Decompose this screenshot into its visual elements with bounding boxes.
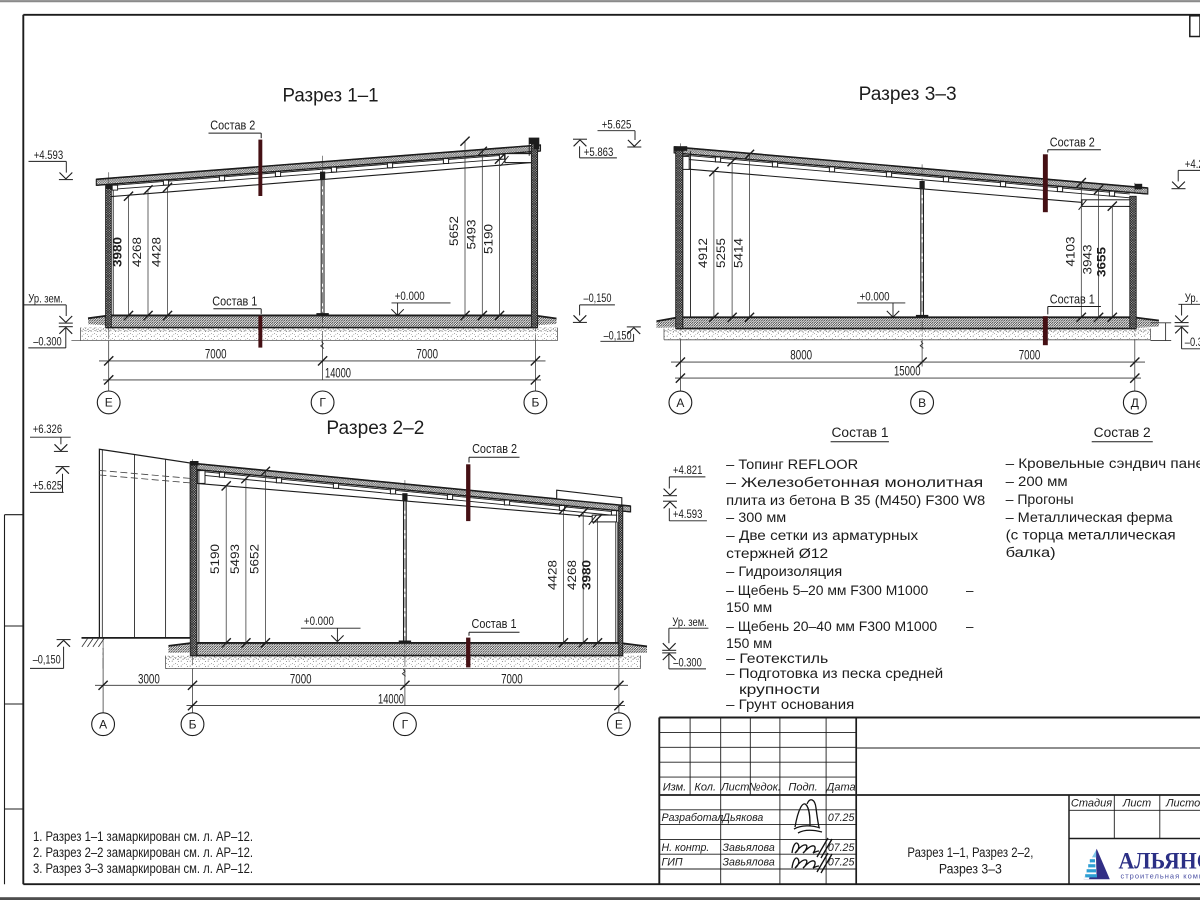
svg-text:Завьялова: Завьялова: [723, 857, 775, 869]
svg-text:Ур. зем.: Ур. зем.: [672, 617, 707, 629]
svg-text:– Щебень 20–40 мм F300 М1000: – Щебень 20–40 мм F300 М1000: [726, 619, 937, 634]
svg-text:+4.593: +4.593: [673, 509, 703, 521]
svg-text:–: –: [966, 619, 974, 634]
svg-text:+4.593: +4.593: [34, 150, 64, 162]
svg-text:5190: 5190: [208, 544, 222, 574]
svg-text:балка): балка): [1006, 545, 1056, 560]
svg-text:Изм.: Изм.: [663, 782, 686, 794]
svg-text:Состав 1: Состав 1: [1050, 293, 1095, 307]
svg-text:Подп.: Подп.: [788, 782, 817, 794]
svg-text:(с торца металлическая: (с торца металлическая: [1006, 528, 1176, 543]
svg-text:4428: 4428: [545, 560, 559, 590]
svg-text:+5.863: +5.863: [584, 147, 614, 159]
svg-text:3. Разрез 3–3 замаркирован см.: 3. Разрез 3–3 замаркирован см. л. АР–12.: [33, 861, 253, 876]
svg-text:7000: 7000: [205, 346, 227, 361]
svg-text:4268: 4268: [130, 237, 144, 267]
svg-text:8000: 8000: [790, 348, 812, 363]
svg-text:№док.: №док.: [749, 782, 781, 794]
svg-text:3980: 3980: [111, 237, 125, 267]
svg-text:Состав 2: Состав 2: [1094, 425, 1151, 440]
svg-text:Д: Д: [1131, 396, 1139, 410]
svg-text:5493: 5493: [464, 219, 478, 249]
svg-text:А: А: [99, 718, 107, 732]
svg-text:Г: Г: [319, 396, 326, 410]
svg-text:– Железобетонная монолитная: – Железобетонная монолитная: [726, 475, 983, 490]
svg-text:+4.821: +4.821: [673, 465, 703, 477]
svg-text:стержней Ø12: стержней Ø12: [726, 546, 828, 561]
svg-text:+0.000: +0.000: [395, 291, 425, 303]
svg-text:Ур. зем.: Ур. зем.: [1185, 293, 1200, 305]
svg-text:Состав 1: Состав 1: [212, 295, 257, 309]
svg-text:4912: 4912: [696, 238, 710, 268]
svg-text:7000: 7000: [501, 672, 523, 687]
svg-text:150 мм: 150 мм: [726, 636, 772, 651]
svg-text:Лист: Лист: [720, 782, 749, 794]
svg-text:–0.300: –0.300: [33, 337, 62, 349]
svg-text:7000: 7000: [290, 672, 312, 687]
svg-text:4268: 4268: [565, 560, 579, 590]
svg-text:– Геотекстиль: – Геотекстиль: [726, 651, 828, 666]
svg-text:– Металлическая ферма: – Металлическая ферма: [1006, 510, 1174, 525]
svg-text:Б: Б: [189, 718, 197, 732]
svg-text:–: –: [966, 583, 974, 598]
svg-text:7000: 7000: [416, 346, 438, 361]
svg-text:14000: 14000: [378, 691, 404, 706]
svg-text:– 200 мм: – 200 мм: [1006, 474, 1068, 489]
svg-text:07.25: 07.25: [828, 842, 855, 854]
svg-text:Стадия: Стадия: [1071, 798, 1112, 810]
svg-text:5652: 5652: [247, 544, 261, 574]
svg-text:–0,150: –0,150: [584, 293, 612, 305]
svg-text:3980: 3980: [580, 560, 594, 590]
svg-text:3000: 3000: [138, 672, 160, 687]
svg-text:Н. контр.: Н. контр.: [662, 842, 710, 854]
svg-text:Разрез 3–3: Разрез 3–3: [939, 861, 1002, 876]
svg-text:Разрез 1–1: Разрез 1–1: [283, 86, 379, 107]
svg-text:5414: 5414: [732, 238, 746, 268]
svg-text:4103: 4103: [1063, 236, 1077, 266]
svg-text:+5.625: +5.625: [602, 120, 632, 132]
svg-text:4428: 4428: [150, 237, 164, 267]
svg-text:+4.212: +4.212: [1185, 159, 1200, 171]
svg-text:+6.326: +6.326: [33, 424, 63, 436]
svg-text:А: А: [676, 396, 684, 410]
svg-text:5652: 5652: [447, 216, 461, 246]
svg-text:Б: Б: [531, 396, 539, 410]
svg-text:Состав 1: Состав 1: [832, 425, 889, 440]
svg-text:Разрез 3–3: Разрез 3–3: [859, 84, 957, 105]
svg-text:Е: Е: [105, 396, 113, 410]
svg-text:Лист: Лист: [1122, 798, 1151, 810]
svg-text:3655: 3655: [1094, 247, 1108, 277]
svg-text:+0.000: +0.000: [304, 616, 334, 628]
svg-text:– Топинг REFLOOR: – Топинг REFLOOR: [726, 457, 858, 472]
svg-text:АЛЬЯНС: АЛЬЯНС: [1119, 848, 1200, 874]
svg-text:– 300 мм: – 300 мм: [726, 510, 786, 525]
svg-text:В: В: [918, 396, 926, 410]
svg-text:Состав 1: Состав 1: [472, 617, 517, 631]
svg-text:–0,150: –0,150: [604, 330, 632, 342]
svg-text:Г: Г: [402, 718, 409, 732]
svg-text:ГИП: ГИП: [662, 857, 683, 869]
svg-text:–0,150: –0,150: [33, 654, 61, 666]
svg-text:07.25: 07.25: [828, 857, 855, 869]
svg-text:– Прогоны: – Прогоны: [1006, 492, 1074, 507]
svg-text:2. Разрез 2–2 замаркирован см.: 2. Разрез 2–2 замаркирован см. л. АР–12.: [33, 845, 253, 860]
svg-text:–0.300: –0.300: [1185, 337, 1200, 349]
svg-text:Разрез 1–1, Разрез 2–2,: Разрез 1–1, Разрез 2–2,: [907, 845, 1033, 860]
svg-text:Завьялова: Завьялова: [723, 842, 775, 854]
svg-text:крупности: крупности: [739, 682, 820, 697]
svg-text:строительная компания: строительная компания: [1121, 872, 1200, 881]
svg-text:– Две сетки из арматурных: – Две сетки из арматурных: [726, 528, 918, 543]
svg-text:– Щебень 5–20 мм F300 М1000: – Щебень 5–20 мм F300 М1000: [726, 583, 928, 598]
svg-text:Ур. зем.: Ур. зем.: [28, 294, 63, 306]
svg-text:150 мм: 150 мм: [726, 600, 772, 615]
svg-text:5255: 5255: [714, 238, 728, 268]
svg-text:Дьякова: Дьякова: [722, 812, 764, 824]
svg-text:– Подготовка из песка средней: – Подготовка из песка средней: [726, 666, 943, 681]
svg-text:5493: 5493: [228, 544, 242, 574]
svg-text:14000: 14000: [325, 365, 351, 380]
svg-text:– Кровельные сэндвич панели –: – Кровельные сэндвич панели –: [1006, 456, 1200, 471]
svg-text:07.25: 07.25: [828, 812, 855, 824]
svg-text:Дата: Дата: [825, 782, 856, 794]
svg-text:+5.625: +5.625: [33, 480, 63, 492]
svg-text:Листов: Листов: [1165, 798, 1200, 810]
svg-text:– Грунт основания: – Грунт основания: [726, 697, 854, 712]
svg-text:Разработал: Разработал: [662, 812, 724, 824]
svg-text:Состав 2: Состав 2: [210, 118, 255, 132]
svg-text:3943: 3943: [1081, 244, 1095, 274]
svg-text:1. Разрез 1–1 замаркирован см.: 1. Разрез 1–1 замаркирован см. л. АР–12.: [33, 829, 253, 844]
svg-text:5190: 5190: [482, 224, 496, 254]
svg-text:Состав 2: Состав 2: [1050, 136, 1095, 150]
svg-text:+0.000: +0.000: [860, 291, 890, 303]
svg-text:Разрез 2–2: Разрез 2–2: [326, 418, 424, 439]
svg-text:– Гидроизоляция: – Гидроизоляция: [726, 564, 842, 579]
svg-text:Состав 2: Состав 2: [472, 442, 517, 456]
svg-text:7000: 7000: [1019, 348, 1041, 363]
svg-text:–0.300: –0.300: [673, 657, 702, 669]
svg-text:Е: Е: [615, 718, 623, 732]
svg-text:плита из бетона В 35 (М450) F3: плита из бетона В 35 (М450) F300 W8: [726, 493, 985, 508]
svg-text:Кол.: Кол.: [694, 782, 716, 794]
svg-text:15000: 15000: [894, 364, 921, 379]
